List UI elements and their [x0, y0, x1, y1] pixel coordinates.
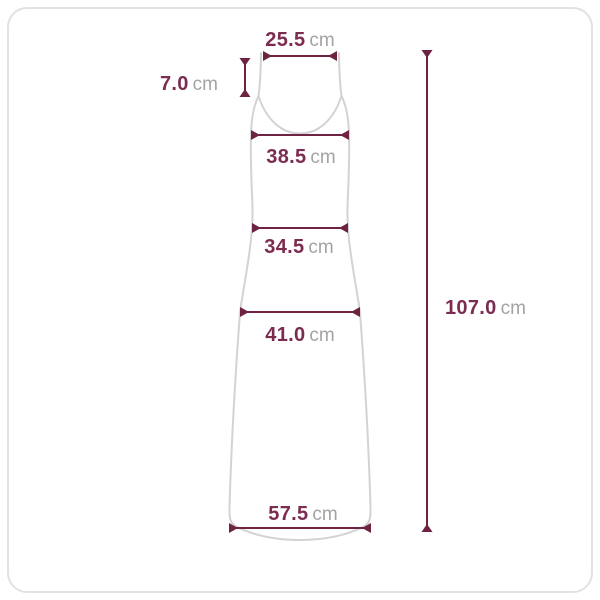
- arrowhead: [422, 524, 433, 532]
- strap-length-dimension: [240, 58, 251, 97]
- arrowhead: [422, 50, 433, 58]
- measurement-value: 38.5: [266, 146, 306, 168]
- measurement-value: 34.5: [264, 236, 304, 258]
- measurement-unit: cm: [193, 74, 218, 95]
- arrowhead: [328, 51, 337, 61]
- measurement-value: 107.0: [445, 297, 497, 319]
- measurement-unit: cm: [308, 237, 333, 258]
- measurement-unit: cm: [309, 30, 334, 51]
- shoulder-width-label: 25.5cm: [265, 30, 334, 50]
- left-strap-line: [259, 53, 262, 96]
- hem-width-label: 57.5cm: [268, 504, 337, 524]
- hip-width-label: 41.0cm: [265, 325, 334, 345]
- shoulder-width-dimension: [263, 51, 337, 61]
- measurement-unit: cm: [310, 147, 335, 168]
- waist-width-dimension: [252, 223, 348, 233]
- measurement-unit: cm: [309, 325, 334, 346]
- measurement-value: 25.5: [265, 29, 305, 51]
- measurement-value: 7.0: [160, 73, 189, 95]
- arrowhead: [339, 223, 348, 233]
- total-length-label: 107.0cm: [445, 298, 526, 318]
- measurement-unit: cm: [501, 298, 526, 319]
- size-chart-canvas: 25.5cm 7.0cm 38.5cm 34.5cm 41.0cm 57.5cm…: [0, 0, 600, 600]
- neckline-curve: [259, 96, 342, 134]
- arrowhead: [340, 130, 349, 140]
- measurement-value: 41.0: [265, 324, 305, 346]
- measurement-unit: cm: [312, 504, 337, 525]
- arrowhead: [240, 89, 251, 97]
- measurement-value: 57.5: [268, 503, 308, 525]
- arrowhead: [252, 223, 261, 233]
- arrowhead: [351, 307, 360, 317]
- strap-length-label: 7.0cm: [160, 74, 218, 94]
- arrowhead: [240, 307, 249, 317]
- hip-width-dimension: [240, 307, 360, 317]
- arrowhead: [240, 58, 251, 66]
- right-strap-line: [339, 53, 342, 96]
- arrowhead: [263, 51, 272, 61]
- arrowhead: [251, 130, 260, 140]
- bust-width-dimension: [251, 130, 349, 140]
- dress-outline: [229, 53, 370, 540]
- bust-width-label: 38.5cm: [266, 147, 335, 167]
- total-length-dimension: [422, 50, 433, 532]
- waist-width-label: 34.5cm: [264, 237, 333, 257]
